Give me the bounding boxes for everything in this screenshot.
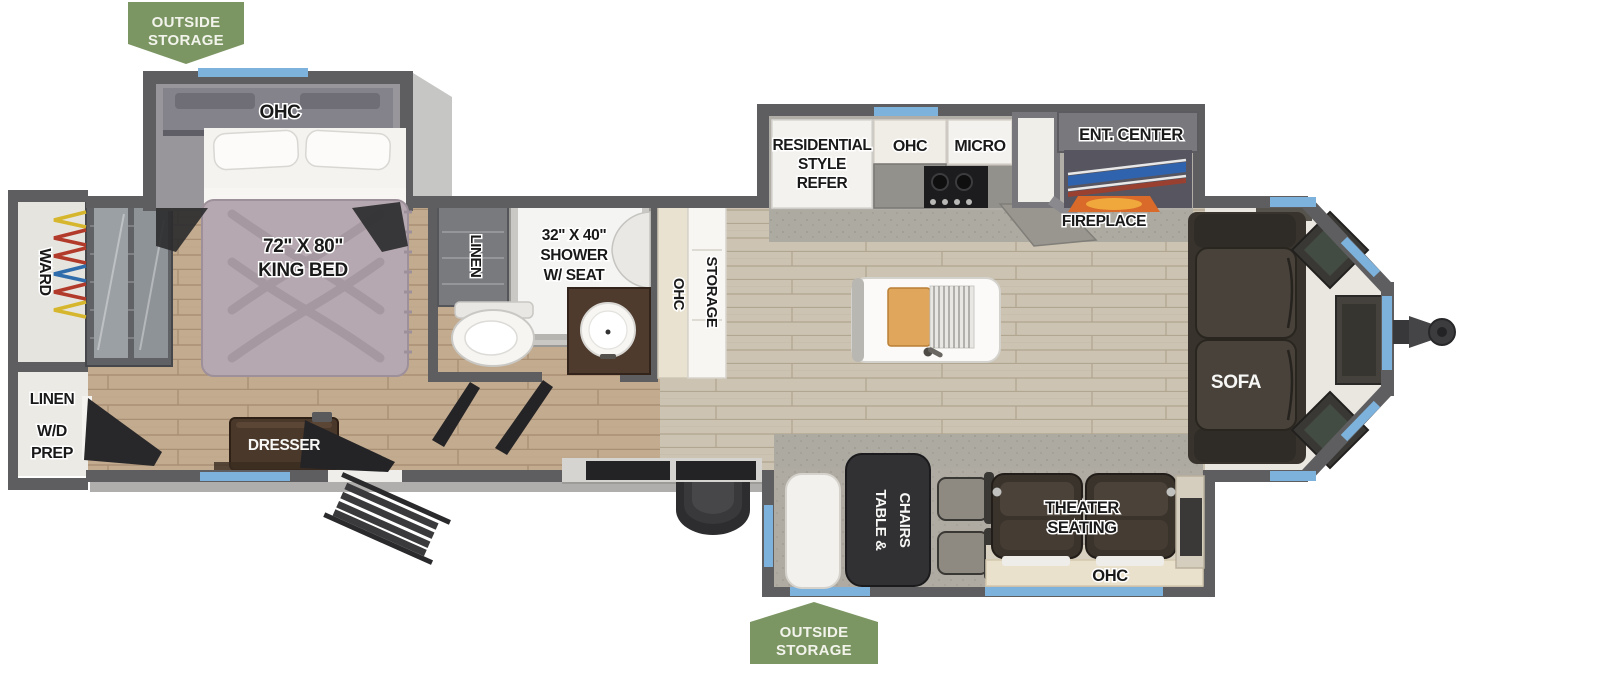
- ent-center-label: ENT. CENTER: [1079, 126, 1183, 144]
- slide-window-right: [985, 587, 1163, 596]
- living-window: [586, 461, 670, 480]
- bedroom-slide-window: [198, 68, 308, 77]
- slide-end-cabinet: [1176, 476, 1204, 568]
- entry-door-opening: [328, 470, 402, 482]
- hall-storage-label: STORAGE: [703, 256, 720, 327]
- bedroom-ohc-label: OHC: [259, 102, 301, 123]
- hitch: [1393, 316, 1455, 348]
- micro-label: MICRO: [954, 138, 1005, 155]
- shower-line3: W/ SEAT: [544, 267, 606, 284]
- kitchen-slide-window: [874, 107, 938, 116]
- living-ohc-label: OHC: [1092, 567, 1128, 585]
- hall-ohc-label: OHC: [670, 278, 687, 311]
- front-tv-panel: [1336, 296, 1382, 384]
- toilet: [452, 302, 534, 366]
- floorplan-page: OUTSIDE STORAGE OUTSIDE STORAGE OHC 72" …: [0, 0, 1600, 677]
- dinette-chair-1: [938, 472, 994, 524]
- bed-type-label: KING BED: [258, 260, 348, 281]
- rear-linen-label: LINEN: [30, 391, 75, 408]
- dinette-bench: [786, 474, 840, 588]
- bath-vanity: [568, 288, 650, 374]
- pillow-left: [213, 130, 299, 170]
- theater-footrest-right: [1096, 556, 1164, 566]
- outside-storage-top-line1: OUTSIDE: [152, 14, 221, 31]
- kitchen-counter-right: [988, 166, 1012, 208]
- outside-storage-bottom-line2: STORAGE: [776, 642, 852, 659]
- theater-line1: THEATER: [1045, 499, 1119, 517]
- wd-prep-line2: PREP: [31, 445, 74, 462]
- shower-line1: 32" X 40": [542, 227, 607, 244]
- refer-line2: STYLE: [798, 156, 846, 173]
- fireplace-label: FIREPLACE: [1062, 213, 1146, 230]
- sofa-label: SOFA: [1211, 372, 1262, 393]
- cutting-board: [888, 288, 930, 346]
- shower-line2: SHOWER: [540, 247, 608, 264]
- refer-line1: RESIDENTIAL: [773, 137, 872, 154]
- outside-storage-bottom-line1: OUTSIDE: [780, 624, 849, 641]
- table-chairs-line1: TABLE &: [872, 489, 889, 551]
- living-entry-steps: [676, 482, 750, 535]
- theater-footrest-left: [1002, 556, 1070, 566]
- wd-prep-line1: W/D: [37, 423, 67, 440]
- outside-storage-top-line2: STORAGE: [148, 32, 224, 49]
- slide-window-side: [764, 505, 773, 567]
- ward-label: WARD: [36, 248, 53, 295]
- theater-line2: SEATING: [1047, 519, 1116, 537]
- kitchen-ohc-label: OHC: [893, 138, 928, 155]
- refer-line3: REFER: [797, 175, 848, 192]
- sofa: [1188, 212, 1306, 464]
- bath-linen-label: LINEN: [467, 234, 484, 277]
- pillow-right: [305, 130, 391, 170]
- dresser-label: DRESSER: [248, 437, 320, 454]
- island-sink: [930, 286, 974, 348]
- living-slide: [762, 454, 1215, 597]
- cooktop: [924, 166, 988, 208]
- fireplace: [1068, 196, 1160, 212]
- kitchen-island: [852, 278, 1000, 362]
- table-chairs-line2: CHAIRS: [896, 492, 913, 547]
- floorplan-svg: OUTSIDE STORAGE OUTSIDE STORAGE OHC 72" …: [0, 0, 1600, 677]
- bed-size-label: 72" X 80": [263, 236, 343, 257]
- slide-sidewall-3d: [413, 73, 452, 196]
- living-entry-door: [676, 461, 756, 480]
